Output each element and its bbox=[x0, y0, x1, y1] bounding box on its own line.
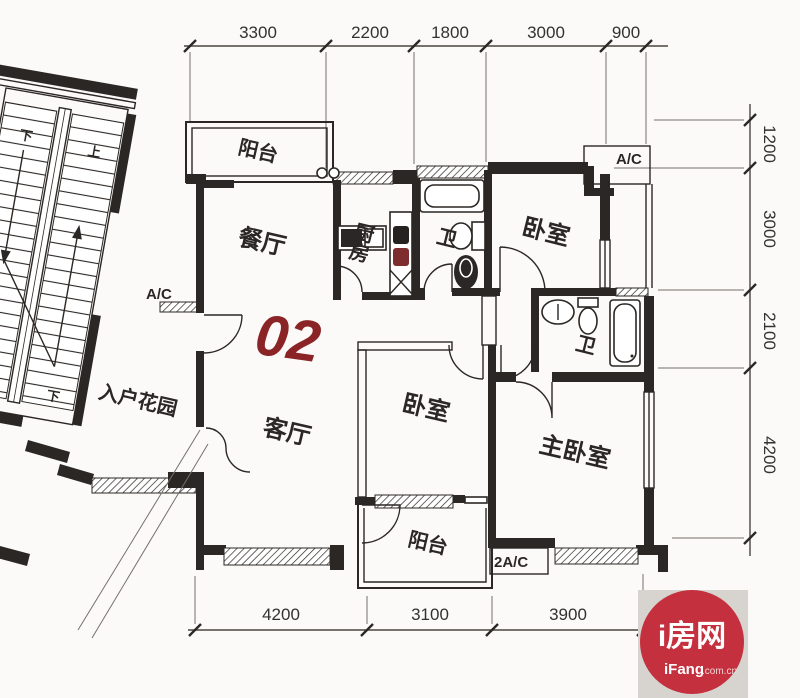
floorplan-image: 3300 2200 1800 3000 900 1200 3000 2100 4… bbox=[0, 0, 800, 698]
ac-bottom-label: 2A/C bbox=[494, 554, 528, 571]
logo-title: i房网 bbox=[658, 620, 726, 653]
balcony-bottom-label: 阳台 bbox=[406, 527, 450, 559]
stair-down-label: 下 bbox=[18, 127, 33, 144]
logo-domain-bold: iFang bbox=[664, 661, 704, 678]
logo-domain-suffix: .com.cn bbox=[702, 666, 737, 677]
unit-number: 02 bbox=[251, 302, 324, 375]
dim-right-1: 1200 bbox=[760, 125, 779, 163]
staircase-block: 下 上 上 下 bbox=[0, 59, 141, 438]
ac-platform-top: A/C bbox=[584, 146, 650, 196]
stair-down-label-2: 下 bbox=[45, 388, 60, 405]
dim-top-2: 2200 bbox=[351, 23, 389, 42]
ac-platform-bottom: 2A/C bbox=[490, 548, 548, 574]
dimension-bottom: 4200 3100 3900 bbox=[188, 574, 652, 636]
bedroom-top-label: 卧室 bbox=[519, 213, 572, 252]
dim-bottom-2: 3100 bbox=[411, 605, 449, 624]
dining-label: 餐厅 bbox=[235, 224, 288, 261]
bath-right-label: 卫 bbox=[573, 333, 598, 359]
bedroom-mid-label: 卧室 bbox=[399, 389, 452, 427]
dim-top-1: 3300 bbox=[239, 23, 277, 42]
ac-left: A/C bbox=[146, 286, 198, 312]
living-label: 客厅 bbox=[260, 413, 313, 451]
dim-right-2: 3000 bbox=[760, 210, 779, 248]
dim-right-3: 2100 bbox=[760, 312, 779, 350]
entry-garden-label: 入户花园 bbox=[96, 379, 179, 420]
dim-right-4: 4200 bbox=[760, 436, 779, 474]
dim-bottom-3: 3900 bbox=[549, 605, 587, 624]
ac-top-right-label: A/C bbox=[616, 151, 642, 168]
dim-top-4: 3000 bbox=[527, 23, 565, 42]
stair-up-label: 上 bbox=[87, 143, 102, 160]
dim-top-3: 1800 bbox=[431, 23, 469, 42]
dim-top-5: 900 bbox=[612, 23, 640, 42]
dim-bottom-1: 4200 bbox=[262, 605, 300, 624]
master-bedroom-label: 主卧室 bbox=[537, 430, 613, 473]
balcony-top-label: 阳台 bbox=[236, 135, 280, 167]
entry-garden-structure bbox=[0, 430, 208, 638]
ifang-logo: i房网 iFang .com.cn bbox=[638, 590, 748, 698]
ac-left-label: A/C bbox=[146, 286, 172, 303]
floorplan-svg: 3300 2200 1800 3000 900 1200 3000 2100 4… bbox=[0, 0, 800, 698]
